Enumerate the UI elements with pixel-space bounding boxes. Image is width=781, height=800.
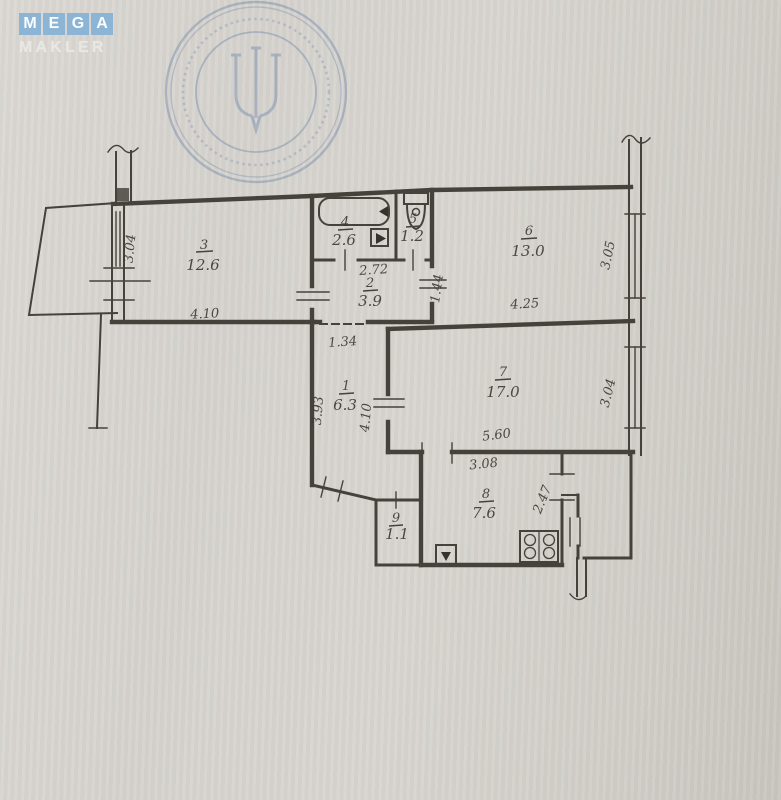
room4-number-label: 4 — [340, 215, 349, 230]
room5-number-label: 5 — [409, 212, 417, 227]
logo-letter-row: M E G A — [19, 13, 113, 35]
door-ticks-room3 — [297, 292, 329, 300]
room2-number-label: 2 — [365, 276, 374, 291]
logo-letter-box: E — [43, 13, 65, 35]
dim-room7-width: 5.60 — [481, 426, 512, 444]
logo-letter-box: A — [91, 13, 113, 35]
dim-room6-width: 4.25 — [509, 296, 540, 313]
room8-area-label: 7.6 — [472, 504, 496, 522]
bathtub-icon — [319, 198, 389, 225]
bath-sink-arrow-icon — [376, 233, 386, 244]
room1-area-label: 6.3 — [333, 396, 357, 414]
scanned-floor-plan-page: M E G A MAKLER — [0, 0, 781, 800]
dim-room6-depth: 3.05 — [598, 240, 619, 271]
dim-room3-width: 4.10 — [189, 306, 220, 323]
stove-burner-icon — [525, 535, 536, 546]
logo-letter-box: M — [19, 13, 41, 35]
dim-room7-depth: 3.04 — [598, 377, 620, 409]
room9-area-label: 1.1 — [385, 525, 409, 543]
room8-number-label: 8 — [482, 487, 490, 502]
room9-number-label: 9 — [392, 511, 400, 526]
wall-below-balcony — [97, 315, 101, 428]
logo-subtitle: MAKLER — [19, 39, 113, 57]
vent-shaft — [117, 188, 129, 201]
dim-room3-depth: 3.04 — [122, 233, 140, 263]
door-ticks-kitchen — [422, 443, 452, 463]
window-room3-hatch — [116, 212, 120, 266]
wall-stub-bottom-right — [577, 558, 586, 596]
dim-hall-opening: 1.34 — [328, 334, 358, 351]
wall-entry-outer — [584, 455, 631, 558]
room3-number-label: 3 — [200, 238, 208, 253]
wall-break-top-right — [622, 135, 650, 143]
dim-hall-length: 4.10 — [358, 403, 376, 434]
room3-area-label: 12.6 — [186, 256, 220, 274]
trident-icon — [231, 48, 281, 130]
window-room3-sills — [90, 268, 150, 300]
labels: 3 12.6 4.10 3.04 4 2.6 5 1.2 2.72 2 3.9 … — [122, 212, 620, 543]
stove-burner-icon — [544, 548, 555, 559]
entry-door-leaf — [570, 518, 580, 546]
wall-stub-top-right — [629, 138, 641, 187]
walls — [29, 135, 650, 599]
room6-area-label: 13.0 — [511, 242, 545, 260]
wall-top — [113, 187, 631, 204]
kitchen-sink-drain-icon — [441, 552, 451, 561]
bathtub-faucet-icon — [379, 206, 388, 217]
wall-break-top-left — [108, 145, 138, 152]
dim-room2-depth: 1.44 — [428, 273, 447, 304]
balcony-outline — [29, 203, 117, 315]
stove-burner-icon — [525, 548, 536, 559]
door-ticks-room7 — [374, 399, 404, 407]
mega-makler-watermark: M E G A MAKLER — [19, 13, 113, 57]
door-ticks-kitchen-right — [550, 474, 574, 500]
room4-area-label: 2.6 — [331, 231, 356, 249]
room7-number-label: 7 — [499, 365, 508, 380]
stove-burner-icon — [544, 535, 555, 546]
room2-area-label: 3.9 — [358, 292, 382, 310]
dim-hall-depth: 3.93 — [310, 396, 327, 426]
room5-area-label: 1.2 — [400, 227, 424, 245]
floor-plan-svg: 3 12.6 4.10 3.04 4 2.6 5 1.2 2.72 2 3.9 … — [0, 0, 781, 800]
dim-kitchen-width: 3.08 — [468, 456, 498, 474]
room1-number-label: 1 — [342, 379, 350, 394]
toilet-cistern-icon — [404, 193, 428, 204]
room7-area-label: 17.0 — [486, 383, 520, 401]
room6-number-label: 6 — [525, 224, 533, 239]
round-stamp-trident — [166, 2, 346, 182]
logo-letter-box: G — [67, 13, 89, 35]
